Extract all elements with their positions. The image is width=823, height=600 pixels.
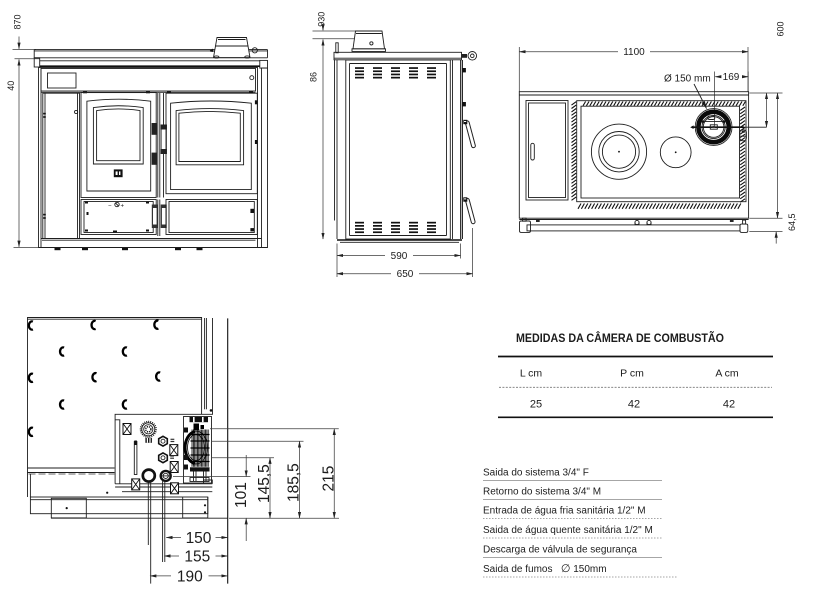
svg-text:150: 150	[186, 530, 212, 547]
svg-text:A cm: A cm	[715, 368, 739, 380]
svg-text:Saida de fumos ∅ 150mm: Saida de fumos ∅ 150mm	[483, 563, 607, 575]
svg-text:155: 155	[184, 549, 210, 566]
svg-text:650: 650	[397, 269, 414, 280]
svg-text:Retorno do sistema 3/4" M: Retorno do sistema 3/4" M	[483, 487, 601, 498]
svg-text:590: 590	[391, 251, 408, 262]
svg-text:−: −	[108, 204, 112, 210]
svg-text:MEDIDAS DA CÂMERA DE COMBUSTÃO: MEDIDAS DA CÂMERA DE COMBUSTÃO	[516, 330, 724, 345]
svg-text:145,5: 145,5	[256, 464, 273, 503]
svg-text:930: 930	[317, 12, 327, 27]
svg-text:870: 870	[13, 14, 23, 29]
svg-text:190: 190	[177, 568, 203, 585]
svg-text:40: 40	[6, 81, 16, 91]
svg-text:86: 86	[309, 72, 319, 82]
svg-text:25: 25	[530, 399, 542, 411]
svg-text:L cm: L cm	[520, 368, 543, 380]
svg-text:215: 215	[321, 466, 338, 492]
svg-text:42: 42	[723, 399, 735, 411]
svg-text:+: +	[121, 204, 125, 210]
svg-text:101: 101	[233, 482, 250, 508]
svg-text:P cm: P cm	[620, 368, 644, 380]
svg-text:169: 169	[723, 72, 740, 83]
svg-text:Saida de água quente sanitária: Saida de água quente sanitária 1/2" M	[483, 525, 653, 536]
svg-text:64,5: 64,5	[787, 213, 797, 231]
svg-text:600: 600	[776, 21, 786, 36]
svg-text:42: 42	[628, 399, 640, 411]
svg-text:185,5: 185,5	[286, 463, 303, 502]
svg-text:Ø 150 mm: Ø 150 mm	[664, 74, 711, 85]
svg-text:Entrada de água fria sanitária: Entrada de água fria sanitária 1/2" M	[483, 506, 646, 517]
svg-text:Saida do sistema 3/4" F: Saida do sistema 3/4" F	[483, 468, 589, 479]
svg-text:Descarga de válvula de seguran: Descarga de válvula de segurança	[483, 545, 637, 556]
svg-text:1100: 1100	[623, 47, 645, 58]
